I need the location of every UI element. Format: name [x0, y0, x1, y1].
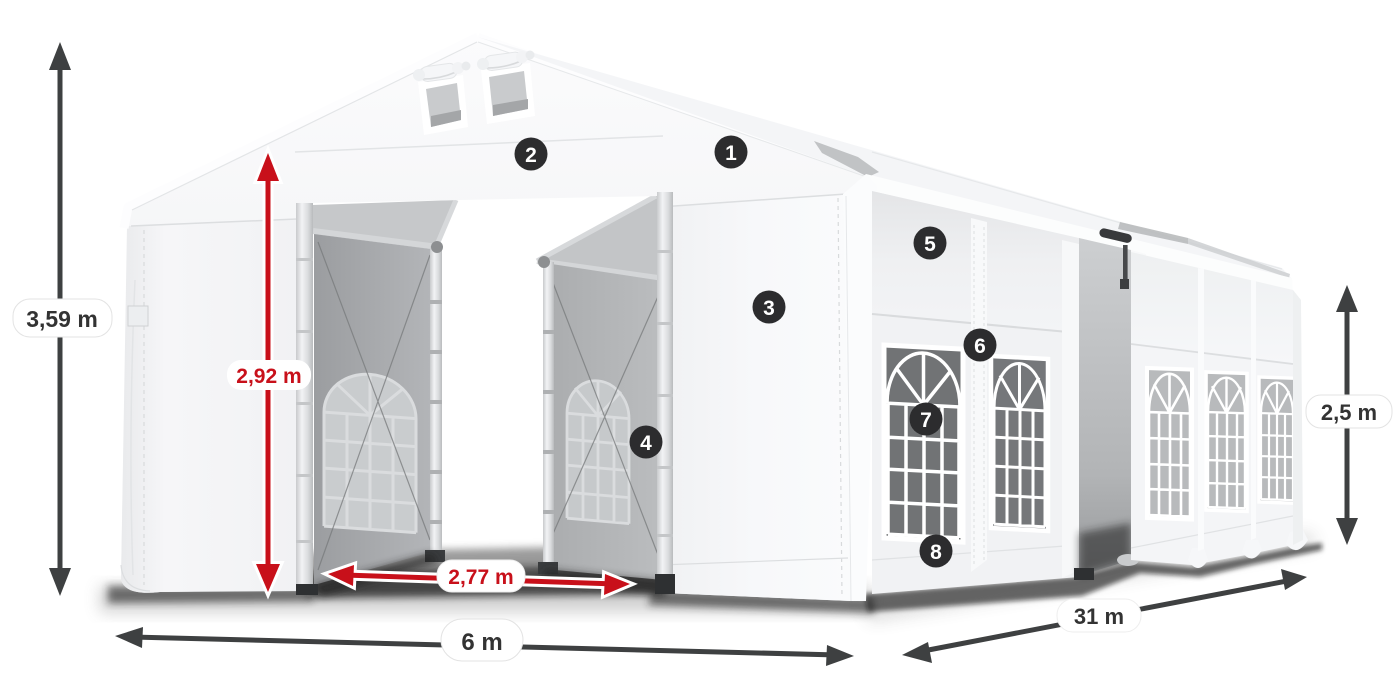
svg-text:2,5 m: 2,5 m — [1321, 400, 1377, 425]
svg-text:3: 3 — [763, 297, 775, 320]
svg-text:8: 8 — [930, 541, 942, 564]
svg-text:5: 5 — [924, 233, 936, 256]
svg-text:1: 1 — [725, 142, 737, 165]
svg-text:2,77 m: 2,77 m — [448, 566, 513, 589]
svg-text:2,92 m: 2,92 m — [236, 365, 301, 388]
svg-text:6: 6 — [974, 335, 986, 358]
svg-text:6 m: 6 m — [461, 629, 502, 656]
svg-text:2: 2 — [525, 144, 537, 167]
svg-text:4: 4 — [640, 432, 652, 455]
svg-text:31 m: 31 m — [1074, 604, 1124, 629]
svg-text:7: 7 — [920, 409, 932, 432]
svg-text:3,59 m: 3,59 m — [26, 306, 98, 332]
